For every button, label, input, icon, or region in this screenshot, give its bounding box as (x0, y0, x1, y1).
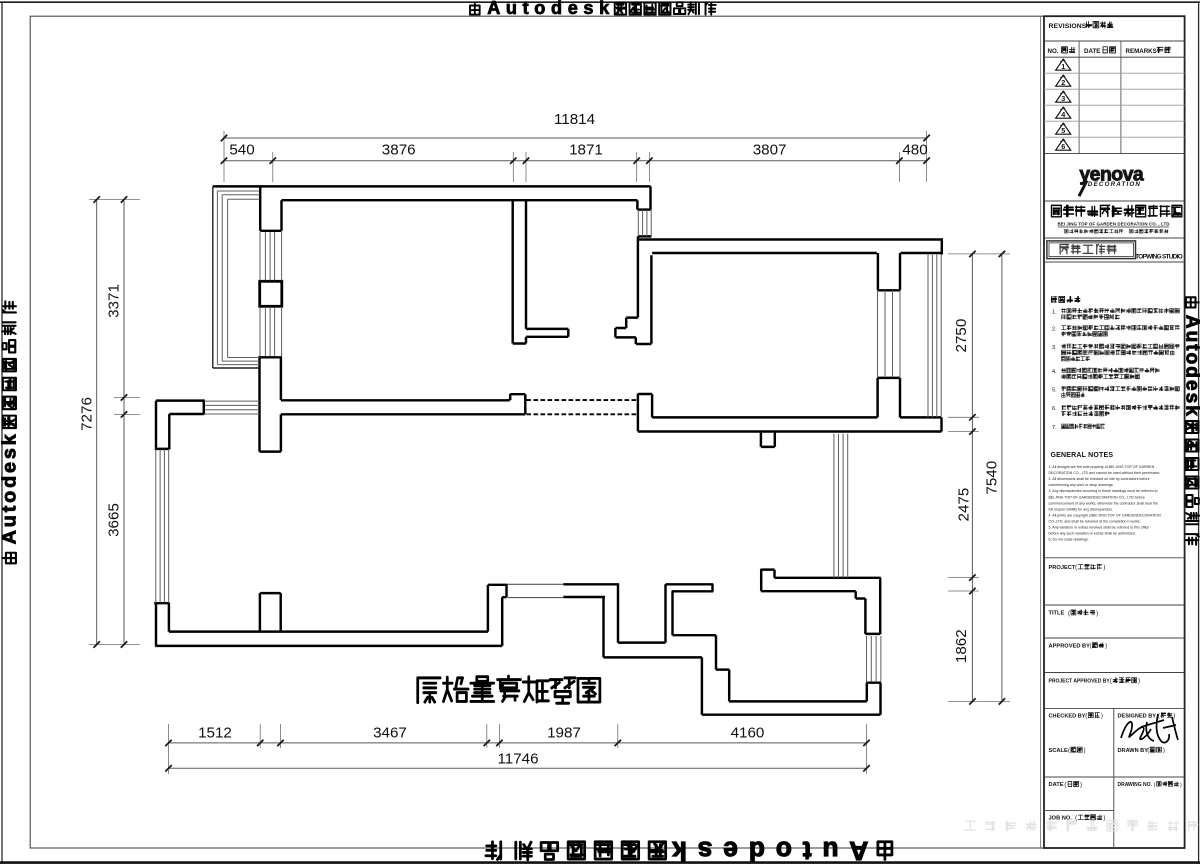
svg-text:1.: 1. (1052, 309, 1057, 315)
svg-text:7276: 7276 (79, 397, 96, 431)
svg-text:): ) (1180, 782, 1182, 788)
svg-text:5. Any variation or extras inv: 5. Any variation or extras involved shal… (1049, 526, 1150, 530)
svg-text:4. All prints are copyright c/: 4. All prints are copyright c/BEI JING T… (1049, 513, 1162, 517)
svg-text:2.: 2. (1052, 326, 1057, 332)
svg-text:2. All dimensions shall be che: 2. All dimensions shall be checked on si… (1049, 477, 1150, 481)
svg-text:(: ( (1075, 815, 1077, 822)
svg-text:1862: 1862 (953, 629, 970, 663)
svg-text:CHECKED BY: CHECKED BY (1049, 713, 1086, 719)
svg-text:1: 1 (1061, 62, 1065, 71)
svg-text:TITLE: TITLE (1049, 611, 1065, 617)
svg-text:3807: 3807 (753, 142, 787, 159)
svg-text:BEI JING TOP OF GARDEN DECORAT: BEI JING TOP OF GARDEN DECORATION CO. , … (1057, 221, 1169, 226)
svg-text:(: ( (1068, 747, 1070, 754)
svg-text:4: 4 (1061, 110, 1065, 119)
svg-text:11746: 11746 (497, 751, 538, 768)
svg-text:): ) (1138, 678, 1140, 685)
svg-text:): ) (1103, 564, 1105, 571)
svg-text:(: ( (1064, 781, 1066, 788)
svg-text:540: 540 (229, 142, 254, 159)
svg-text:): ) (1173, 713, 1175, 720)
svg-text:5.: 5. (1052, 387, 1057, 393)
svg-text:CO.,LTD. and shall be returned: CO.,LTD. and shall be returned at the co… (1049, 519, 1141, 523)
svg-text:APPROVED BY: APPROVED BY (1049, 643, 1091, 649)
svg-text:(: ( (1085, 713, 1087, 720)
svg-text:): ) (1163, 747, 1165, 754)
svg-text:3. Any discrepancies occurring: 3. Any discrepancies occurring in these … (1049, 489, 1158, 493)
svg-text:before any such variation or e: before any such variation or extras shal… (1049, 532, 1136, 536)
svg-text:DRAWN BY: DRAWN BY (1118, 748, 1149, 754)
svg-text:commencing any work or shop dr: commencing any work or shop drawings. (1049, 483, 1114, 487)
svg-text:3876: 3876 (382, 142, 416, 159)
svg-text:NO.: NO. (1048, 48, 1059, 55)
svg-text:TOPWING STUDIO: TOPWING STUDIO (1135, 253, 1183, 260)
svg-text:(: ( (1110, 678, 1112, 685)
svg-text:11814: 11814 (554, 111, 595, 128)
svg-text:2750: 2750 (953, 319, 970, 353)
svg-text:1512: 1512 (198, 725, 232, 742)
svg-text:DATE: DATE (1049, 782, 1064, 788)
svg-text:): ) (1103, 815, 1105, 822)
svg-text:(: ( (1147, 747, 1149, 754)
svg-text:7540: 7540 (984, 461, 1001, 495)
svg-text:3371: 3371 (106, 284, 123, 318)
svg-text:4.: 4. (1052, 369, 1057, 375)
svg-text:6: 6 (1061, 142, 1065, 151)
svg-text:SCALE: SCALE (1049, 748, 1068, 754)
svg-text:): ) (1096, 610, 1098, 617)
svg-text:REMARKS: REMARKS (1126, 48, 1157, 55)
svg-text:DESIGNED BY: DESIGNED BY (1118, 713, 1157, 719)
svg-text:2: 2 (1061, 78, 1065, 87)
svg-text:1987: 1987 (547, 725, 581, 742)
svg-text:(: ( (1075, 564, 1077, 571)
svg-text:DECORATION CO., LTD and cannot: DECORATION CO., LTD and cannot be used w… (1049, 471, 1161, 475)
svg-text:): ) (1080, 781, 1082, 788)
svg-text:DRAWING NO.: DRAWING NO. (1118, 782, 1153, 788)
svg-text:3467: 3467 (373, 725, 407, 742)
svg-text:PROJECT: PROJECT (1049, 565, 1076, 571)
svg-text:): ) (1101, 713, 1103, 720)
svg-text:REVISIONS: REVISIONS (1049, 23, 1087, 30)
svg-text:(: ( (1068, 610, 1070, 617)
svg-text:3665: 3665 (106, 503, 123, 537)
svg-text:): ) (1084, 747, 1086, 754)
svg-text:DATE: DATE (1084, 48, 1100, 55)
svg-text:(: ( (1154, 782, 1156, 788)
svg-text:full respon rsibility for any: full respon rsibility for any discrepanc… (1049, 507, 1114, 511)
svg-text:7.: 7. (1052, 425, 1057, 431)
svg-text:1. All designs are the sole pr: 1. All designs are the sole property of … (1049, 465, 1155, 469)
svg-text:DECORATION: DECORATION (1088, 181, 1141, 188)
svg-text:3: 3 (1061, 94, 1065, 103)
svg-text:): ) (1105, 643, 1107, 650)
svg-text:480: 480 (902, 142, 927, 159)
svg-text:4160: 4160 (731, 725, 765, 742)
svg-text:6. Do not scale drawings.: 6. Do not scale drawings. (1049, 538, 1089, 542)
svg-text:3.: 3. (1052, 345, 1057, 351)
svg-text:6.: 6. (1052, 406, 1057, 412)
svg-text:BEI JING TOP OF GARDENDECORATI: BEI JING TOP OF GARDENDECORATION CO., LT… (1049, 495, 1145, 499)
svg-text:GENERAL NOTES: GENERAL NOTES (1051, 452, 1114, 459)
svg-text:Autodesk: Autodesk (0, 433, 21, 544)
svg-text:Autodesk: Autodesk (1181, 315, 1200, 416)
svg-text:1871: 1871 (569, 142, 603, 159)
svg-text:5: 5 (1061, 126, 1065, 135)
svg-text:(: ( (1090, 643, 1092, 650)
svg-text:PROJECT APPROVED BY: PROJECT APPROVED BY (1049, 678, 1111, 684)
svg-text:2475: 2475 (956, 488, 973, 522)
svg-text:commencement of any works, ot: commencement of any works, otherwise the… (1049, 501, 1159, 505)
